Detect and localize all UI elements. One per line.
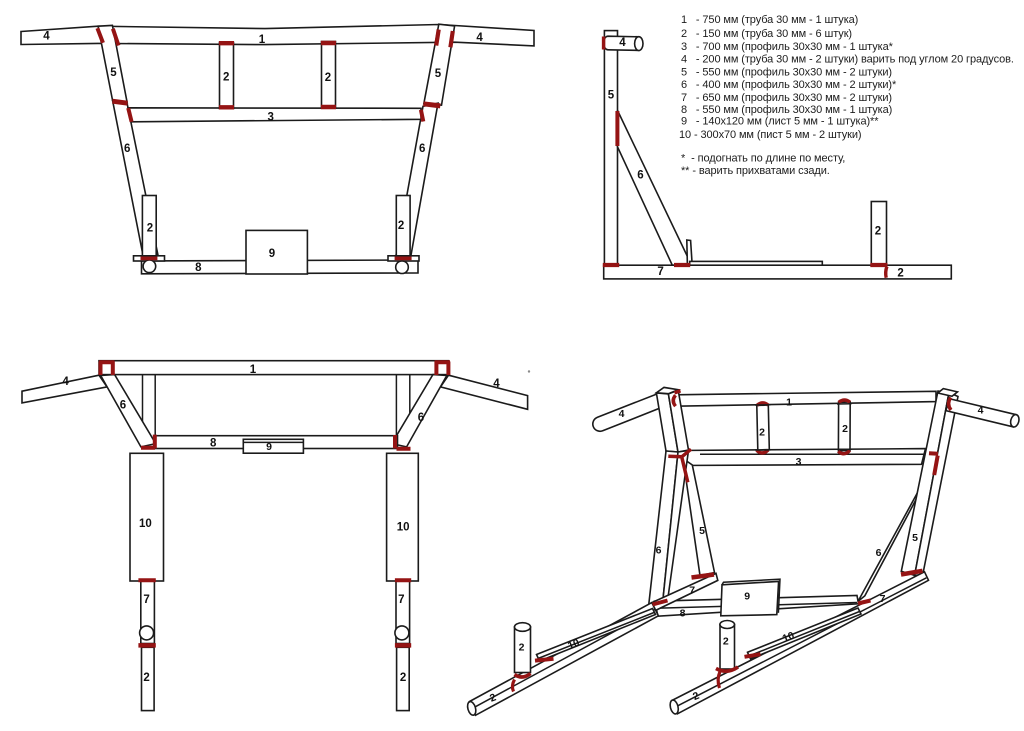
svg-text:1: 1 (786, 397, 792, 409)
svg-text:9: 9 (269, 248, 275, 260)
svg-text:4: 4 (43, 31, 50, 43)
svg-text:* - подогнать по длине по мес: * - подогнать по длине по месту, (681, 153, 845, 165)
svg-text:4: 4 (493, 378, 500, 390)
svg-text:7: 7 (143, 594, 149, 606)
svg-text:3 - 700 мм (профиль 30х30 мм: 3 - 700 мм (профиль 30х30 мм - 1 штука* (681, 41, 894, 53)
svg-text:4: 4 (476, 32, 483, 44)
svg-text:2: 2 (723, 636, 729, 648)
svg-text:2: 2 (759, 427, 765, 439)
svg-text:** - варить прихватами сзади.: ** - варить прихватами сзади. (681, 165, 830, 177)
svg-text:8: 8 (680, 608, 686, 620)
svg-text:9 - 140х120 мм (лист 5 мм -: 9 - 140х120 мм (лист 5 мм - 1 штука)** (681, 116, 879, 128)
svg-text:1: 1 (250, 364, 257, 376)
svg-text:7: 7 (398, 594, 404, 606)
svg-text:5 - 550 мм (профиль 30х30 мм: 5 - 550 мм (профиль 30х30 мм - 2 штуки) (681, 67, 892, 79)
svg-text:4: 4 (619, 37, 626, 49)
svg-text:2: 2 (143, 672, 149, 684)
svg-text:2: 2 (897, 267, 903, 279)
svg-text:6: 6 (637, 170, 643, 182)
svg-text:6: 6 (656, 545, 662, 557)
svg-text:2: 2 (325, 72, 331, 84)
svg-text:8: 8 (210, 438, 217, 450)
svg-text:6: 6 (419, 143, 425, 155)
svg-text:6: 6 (418, 412, 424, 424)
svg-text:5: 5 (435, 68, 442, 80)
svg-text:6 - 400 мм (профиль 30х30 мм: 6 - 400 мм (профиль 30х30 мм - 2 штуки)* (681, 79, 897, 91)
svg-text:7: 7 (880, 593, 886, 605)
svg-text:5: 5 (608, 89, 615, 101)
svg-text:3: 3 (796, 456, 802, 468)
svg-text:9: 9 (744, 590, 750, 602)
svg-text:7: 7 (657, 266, 663, 278)
svg-text:5: 5 (699, 525, 705, 537)
svg-text:2: 2 (223, 72, 229, 84)
svg-text:2: 2 (400, 672, 406, 684)
svg-text:6: 6 (124, 143, 130, 155)
svg-text:1: 1 (259, 34, 266, 46)
svg-text:7: 7 (689, 585, 695, 597)
svg-text:5: 5 (912, 532, 918, 544)
svg-text:3: 3 (267, 111, 273, 123)
svg-text:10: 10 (139, 518, 152, 530)
svg-text:4: 4 (619, 408, 625, 420)
svg-text:2: 2 (519, 642, 525, 654)
svg-text:8 - 550 мм (профиль 30х30 мм: 8 - 550 мм (профиль 30х30 мм - 1 штука) (681, 104, 892, 116)
svg-text:6: 6 (876, 547, 882, 559)
svg-text:2 - 150 мм (труба 30 мм - 6: 2 - 150 мм (труба 30 мм - 6 штук) (681, 28, 852, 40)
svg-text:2: 2 (842, 423, 848, 435)
svg-text:4: 4 (978, 405, 984, 417)
svg-text:10 - 300х70 мм (пист 5 мм - 2: 10 - 300х70 мм (пист 5 мм - 2 штуки) (679, 129, 861, 141)
svg-text:2: 2 (875, 226, 881, 238)
svg-text:5: 5 (110, 67, 117, 79)
svg-text:9: 9 (266, 441, 272, 453)
svg-text:2: 2 (398, 220, 404, 232)
svg-text:7 - 650 мм (профиль 30х30 мм: 7 - 650 мм (профиль 30х30 мм - 2 штуки) (681, 92, 892, 104)
svg-text:8: 8 (195, 262, 202, 274)
svg-text:2: 2 (147, 223, 153, 235)
svg-text:1 - 750 мм (труба 30 мм - 1: 1 - 750 мм (труба 30 мм - 1 штука) (681, 14, 858, 26)
svg-text:10: 10 (397, 521, 410, 533)
svg-text:6: 6 (120, 399, 126, 411)
svg-text:4: 4 (62, 376, 69, 388)
svg-text:4 - 200 мм (труба 30 мм - 2: 4 - 200 мм (труба 30 мм - 2 штуки) варит… (681, 54, 1014, 66)
